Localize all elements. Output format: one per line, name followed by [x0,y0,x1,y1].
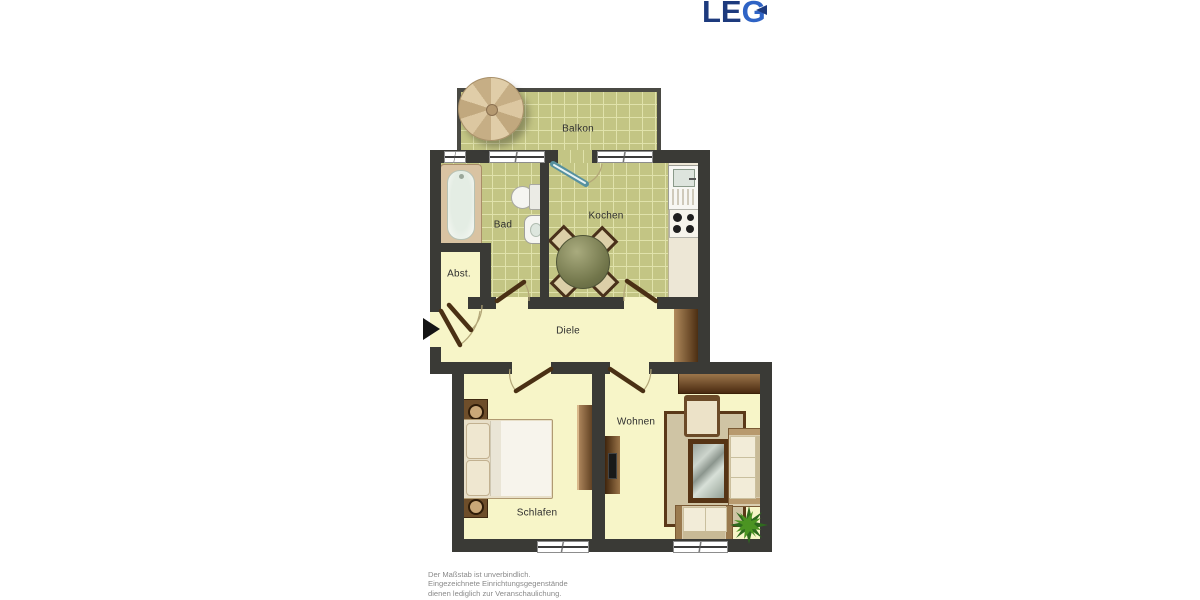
stove-burner [673,225,681,233]
balkon-wall-right [657,88,661,152]
nightstand-lamp [468,404,484,420]
coffee-table-icon [688,439,729,503]
dining-table-icon [556,235,610,289]
wall-schlafen-wohnen [592,374,605,539]
room-label-kochen: Kochen [588,211,623,222]
wall-right-lower [760,362,772,552]
wall-left-lower [452,362,464,552]
hall-wardrobe-icon [674,304,698,364]
tv-board-icon [605,436,620,494]
entrance-arrow-icon [423,318,440,340]
leg-logo: LEG [702,0,766,28]
abst-door-opening [441,297,468,309]
kitchen-drainboard [672,189,694,205]
wohnen-door-opening [610,362,649,374]
loveseat-armrest [676,506,682,540]
window-kochen [597,151,653,163]
kitchen-sink-faucet [689,178,696,180]
window-bad [489,151,545,163]
room-label-wohnen: Wohnen [617,417,655,428]
stove-burner [686,225,694,233]
stove-icon [669,209,699,238]
kitchen-sink-icon [668,165,700,210]
room-label-schlafen: Schlafen [517,508,558,519]
room-label-diele: Diele [556,326,580,337]
logo-text-le: LE [702,0,742,29]
logo-arrow-icon [751,5,767,15]
wall-bad-kochen [540,150,549,309]
disclaimer-line-3: dienen lediglich zur Veranschaulichung. [428,589,568,598]
window-bad-small [444,151,466,163]
nightstand-lamp [468,499,484,515]
floor-plan-page: LEG [0,0,1200,600]
parasol-icon [458,77,524,141]
wall-right-upper [698,150,710,374]
wall-diele-bottom [430,362,772,374]
stove-burner [687,214,694,221]
sofa-cushions [730,436,756,499]
window-schlafen [537,541,589,553]
bad-door-opening [496,297,528,309]
balcony-door-opening [558,150,592,163]
bathtub-basin [447,170,475,240]
stove-burner [673,213,682,222]
disclaimer-line-1: Der Maßstab ist unverbindlich. [428,570,568,579]
tv-icon [608,453,617,479]
disclaimer-line-2: Eingezeichnete Einrichtungsgegenstände [428,579,568,588]
schlafen-door-opening [512,362,551,374]
logo-letter-g: G [742,0,766,29]
duvet [490,421,551,496]
room-label-balkon: Balkon [562,124,594,135]
loveseat-icon [675,505,733,541]
room-label-abst: Abst. [447,269,471,280]
room-label-bad: Bad [494,220,512,231]
loveseat-cushions [683,507,727,532]
double-bed-icon [462,419,553,499]
pillow [466,423,490,459]
sideboard-icon [678,372,768,394]
pillow [466,460,490,496]
bathtub-icon [440,164,482,247]
armchair-icon [684,395,720,437]
disclaimer: Der Maßstab ist unverbindlich. Eingezeic… [428,570,568,598]
window-wohnen [673,541,728,553]
loveseat-back [683,531,725,539]
kochen-door-opening [624,297,657,309]
bathtub-faucet [459,174,464,179]
sofa-armrest [729,429,764,435]
